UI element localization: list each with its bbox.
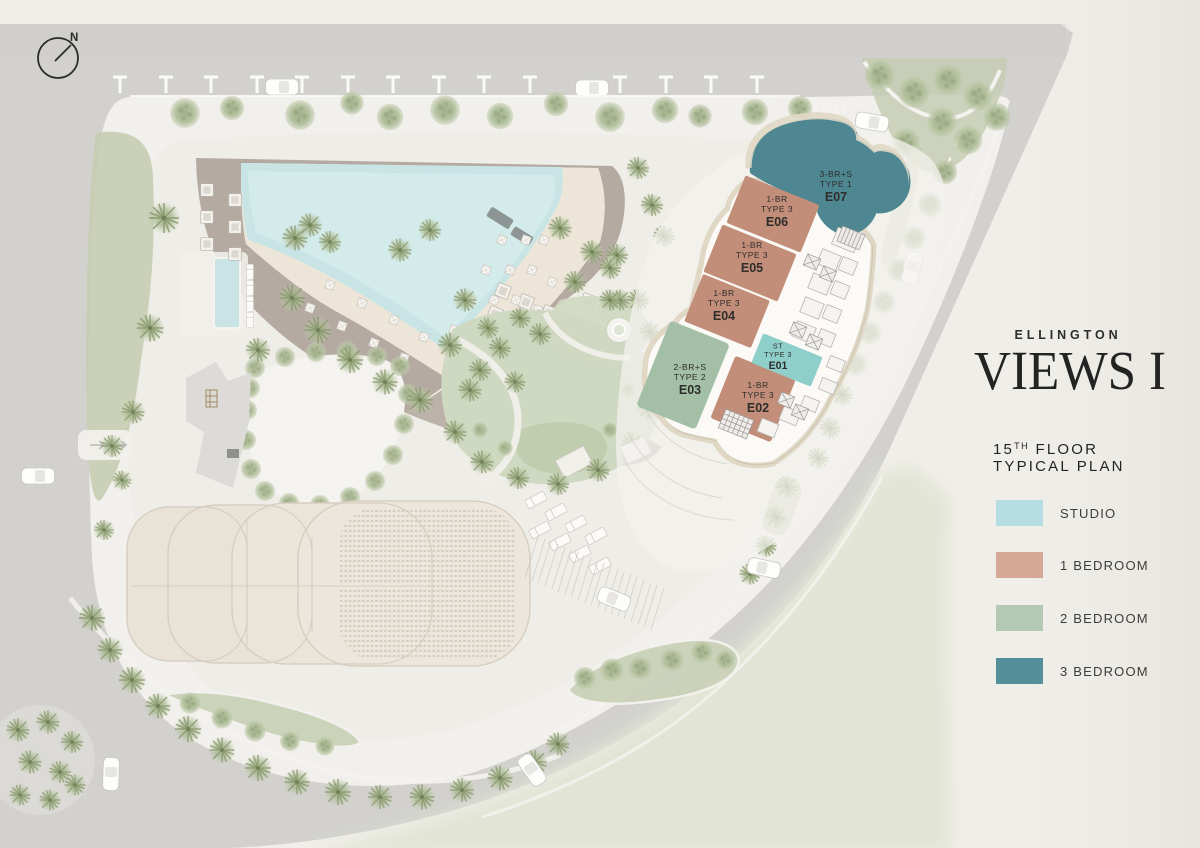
svg-text:TYPE 2: TYPE 2 xyxy=(674,372,706,382)
svg-text:1-BR: 1-BR xyxy=(713,288,734,298)
svg-text:E06: E06 xyxy=(766,215,788,229)
svg-text:TYPE 3: TYPE 3 xyxy=(764,350,792,359)
svg-text:E03: E03 xyxy=(679,383,701,397)
svg-text:VIEWS I: VIEWS I xyxy=(974,340,1166,401)
svg-text:TYPE 3: TYPE 3 xyxy=(736,250,768,260)
svg-text:1 BEDROOM: 1 BEDROOM xyxy=(1060,558,1149,573)
svg-text:1-BR: 1-BR xyxy=(766,194,787,204)
svg-text:E01: E01 xyxy=(769,360,788,372)
svg-text:TYPICAL PLAN: TYPICAL PLAN xyxy=(993,458,1125,475)
svg-text:3 BEDROOM: 3 BEDROOM xyxy=(1060,664,1149,679)
svg-text:N: N xyxy=(70,32,78,44)
svg-text:STUDIO: STUDIO xyxy=(1060,506,1116,521)
svg-text:15TH FLOOR: 15TH FLOOR xyxy=(993,441,1098,458)
svg-text:TYPE 3: TYPE 3 xyxy=(708,298,740,308)
svg-text:3-BR+S: 3-BR+S xyxy=(820,169,853,179)
svg-text:E02: E02 xyxy=(747,401,769,415)
svg-text:E04: E04 xyxy=(713,309,735,323)
svg-text:2-BR+S: 2-BR+S xyxy=(674,362,707,372)
svg-text:TYPE 1: TYPE 1 xyxy=(820,179,852,189)
svg-text:TYPE 3: TYPE 3 xyxy=(761,204,793,214)
svg-text:1-BR: 1-BR xyxy=(747,380,768,390)
svg-text:2 BEDROOM: 2 BEDROOM xyxy=(1060,611,1149,626)
svg-text:E07: E07 xyxy=(825,190,847,204)
svg-text:E05: E05 xyxy=(741,261,763,275)
svg-text:1-BR: 1-BR xyxy=(741,240,762,250)
svg-text:TYPE 3: TYPE 3 xyxy=(742,390,774,400)
